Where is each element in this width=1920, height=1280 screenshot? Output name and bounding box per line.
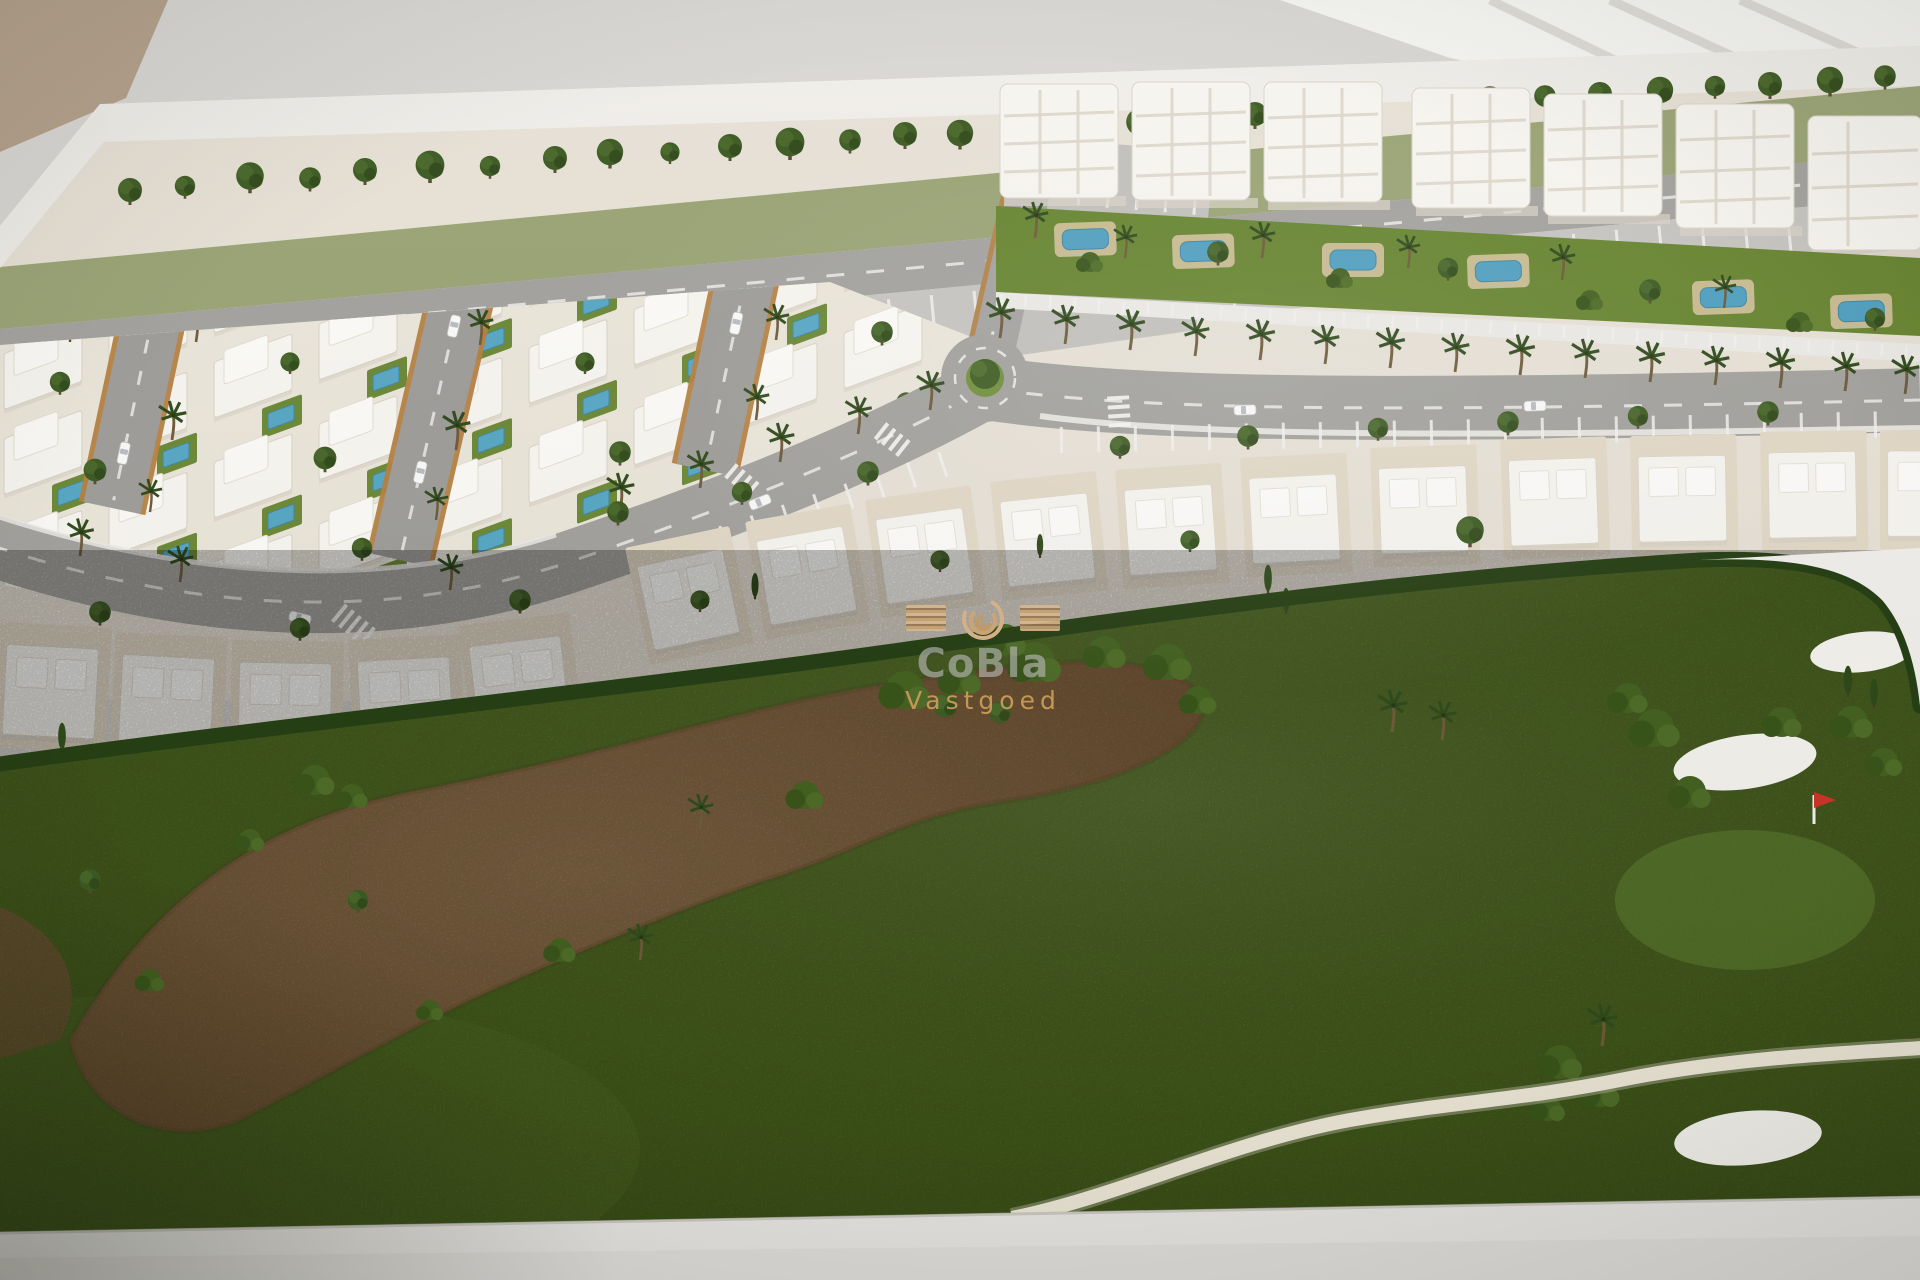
apartment-block	[1000, 84, 1126, 206]
golf-course	[0, 548, 1920, 1280]
apartment-block	[1132, 82, 1258, 208]
apartment-block	[1808, 116, 1920, 258]
pool	[1467, 253, 1530, 289]
car	[1524, 401, 1546, 412]
scale-model	[0, 40, 1920, 1280]
photo-architectural-model: CoBla Vastgoed	[0, 0, 1920, 1280]
car	[1234, 405, 1256, 416]
apartment-block	[1412, 88, 1538, 216]
apartment-block	[1264, 82, 1390, 210]
apartment-block	[1676, 104, 1802, 236]
scene-svg	[0, 0, 1920, 1280]
pool	[1054, 221, 1117, 257]
apartment-block	[1544, 94, 1670, 224]
putting-green	[1615, 830, 1875, 970]
roundabout	[941, 334, 1029, 422]
pool	[1322, 243, 1384, 277]
